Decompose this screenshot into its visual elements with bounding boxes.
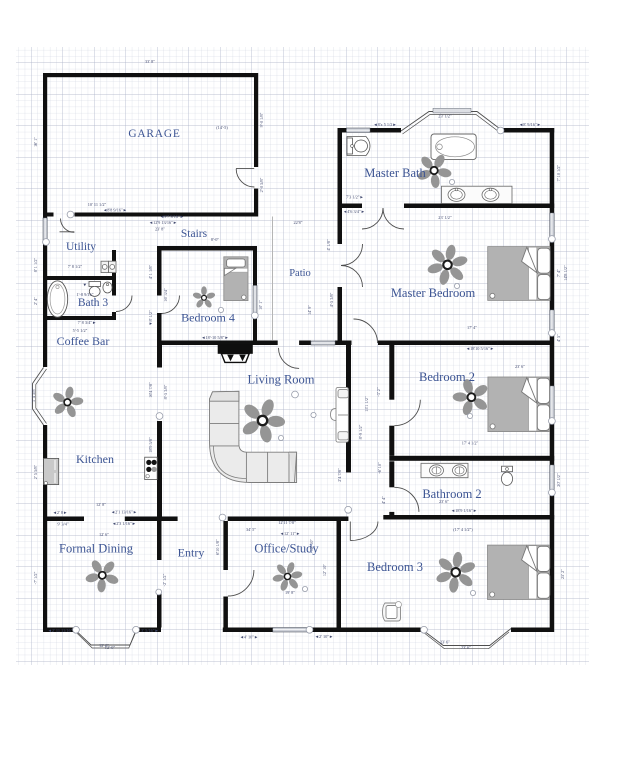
svg-text:15'1 1/2": 15'1 1/2" (364, 396, 369, 412)
svg-text:7' 4": 7' 4" (556, 269, 561, 277)
svg-text:7'3 1/2"►: 7'3 1/2"► (346, 195, 364, 200)
svg-text:2'4 7/8": 2'4 7/8" (337, 468, 342, 482)
svg-text:(17' 4 1/2"): (17' 4 1/2") (453, 527, 473, 532)
svg-text:16' 1": 16' 1" (33, 137, 38, 147)
svg-text:◄4' 10"►: ◄4' 10"► (240, 635, 259, 640)
svg-text:Patio: Patio (289, 268, 311, 279)
svg-text:12' 6": 12' 6" (99, 532, 109, 537)
svg-text:14' 9": 14' 9" (307, 305, 312, 315)
svg-text:Stairs: Stairs (181, 228, 208, 240)
svg-text:◄18'9 1/16"►: ◄18'9 1/16"► (451, 508, 477, 513)
svg-text:33' 8": 33' 8" (145, 59, 155, 64)
svg-text:◄2' 10"►: ◄2' 10"► (315, 634, 334, 639)
svg-text:8' 1 1/2": 8' 1 1/2" (33, 258, 38, 273)
svg-text:2'-0 5/8": 2'-0 5/8" (259, 177, 264, 192)
svg-text:Kitchen: Kitchen (76, 452, 114, 466)
svg-text:Bathroom 2: Bathroom 2 (422, 487, 481, 501)
svg-text:12' 8": 12' 8" (96, 502, 106, 507)
svg-text:Living Room: Living Room (247, 373, 314, 387)
svg-text:◄8' 9/16"►: ◄8' 9/16"► (519, 122, 541, 127)
svg-text:◄8'x 5 1/2►: ◄8'x 5 1/2► (373, 122, 396, 127)
svg-text:GARAGE: GARAGE (128, 128, 180, 140)
svg-text:2' 5 5/8": 2' 5 5/8" (33, 465, 38, 480)
svg-text:18'9 5/8": 18'9 5/8" (148, 437, 153, 453)
svg-text:Utility: Utility (66, 241, 96, 253)
svg-text:4' 1 1/8": 4' 1 1/8" (148, 265, 153, 280)
svg-text:Bath 3: Bath 3 (78, 297, 109, 309)
svg-text:16'4 7/8": 16'4 7/8" (148, 382, 153, 398)
svg-text:-6' 10": -6' 10" (377, 462, 382, 474)
svg-text:17' 4 1/2": 17' 4 1/2" (462, 441, 479, 446)
svg-text:◄2'3 1/16"►: ◄2'3 1/16"► (112, 521, 136, 526)
svg-text:Bedroom 4: Bedroom 4 (181, 311, 235, 325)
svg-text:9' 3/4": 9' 3/4" (57, 522, 68, 527)
svg-text:◄2'1 13/16"►: ◄2'1 13/16"► (111, 510, 137, 515)
svg-text:Master Bedroom: Master Bedroom (391, 286, 476, 300)
svg-text:4' 4": 4' 4" (381, 496, 386, 504)
svg-text:23' 1/2": 23' 1/2" (438, 215, 452, 220)
svg-text:23' 8": 23' 8" (155, 227, 165, 232)
svg-text:17' 4": 17' 4" (467, 325, 477, 330)
svg-text:◄4'6 3/4"►: ◄4'6 3/4"► (343, 209, 365, 214)
svg-text:12' 10": 12' 10" (322, 564, 327, 576)
svg-text:4'-5 3/8": 4'-5 3/8" (329, 292, 334, 307)
svg-text:22'8": 22'8" (294, 220, 303, 225)
svg-text:23' 6": 23' 6" (461, 645, 471, 650)
svg-text:8'-0": 8'-0" (211, 237, 220, 242)
svg-text:◄: ◄ (82, 283, 87, 287)
svg-text:25' 2": 25' 2" (560, 569, 565, 579)
svg-text:14'8 1/2": 14'8 1/2" (563, 265, 568, 281)
svg-text:12' 10": 12' 10" (309, 539, 314, 551)
svg-text:(14'-5): (14'-5) (216, 125, 228, 130)
svg-text:23' 6": 23' 6" (439, 499, 449, 504)
svg-text:3' 5/16"►: 3' 5/16"► (141, 628, 159, 633)
svg-text:7' 8 3/4"►: 7' 8 3/4"► (78, 320, 97, 325)
svg-text:9'-0 1/8": 9'-0 1/8" (259, 112, 264, 127)
svg-text:12'11 7/8": 12'11 7/8" (278, 520, 296, 525)
svg-text:23' 6": 23' 6" (515, 364, 525, 369)
svg-text:7' 10 1/2": 7' 10 1/2" (556, 164, 561, 181)
svg-text:Master Bath: Master Bath (364, 166, 426, 180)
svg-text:23' 1/2": 23' 1/2" (438, 114, 452, 119)
svg-text:1'-8 9/16": 1'-8 9/16" (77, 292, 94, 297)
svg-text:◄2' 11 11/16": ◄2' 11 11/16" (48, 628, 73, 633)
svg-text:6'10 1/8": 6'10 1/8" (215, 539, 220, 555)
svg-text:16' 3/4": 16' 3/4" (163, 288, 168, 302)
svg-text:8'-5 3/8": 8'-5 3/8" (163, 384, 168, 399)
svg-text:Coffee Bar: Coffee Bar (57, 334, 110, 348)
svg-text:◄12' 11"►: ◄12' 11"► (280, 531, 301, 536)
svg-text:-7' 1/2": -7' 1/2" (33, 571, 38, 584)
svg-text:4' 1/8": 4' 1/8" (326, 239, 331, 250)
svg-text:Bedroom 2: Bedroom 2 (419, 370, 475, 384)
svg-text:7' 8 1/2": 7' 8 1/2" (68, 264, 83, 269)
svg-text:23' 6": 23' 6" (440, 640, 450, 645)
svg-text:10' 1": 10' 1" (258, 300, 263, 310)
svg-text:10' 11 1/2": 10' 11 1/2" (88, 202, 107, 207)
svg-text:◄9'7 9/16"►: ◄9'7 9/16"► (160, 214, 184, 219)
svg-text:3' 4 5/8": 3' 4 5/8" (31, 388, 36, 403)
svg-text:Formal Dining: Formal Dining (59, 542, 134, 556)
svg-text:4' 5": 4' 5" (556, 334, 561, 342)
svg-text:-2' 1/2": -2' 1/2" (162, 573, 167, 586)
svg-text:20' 1/2": 20' 1/2" (556, 473, 561, 487)
svg-text:19' 8": 19' 8" (285, 590, 295, 595)
svg-text:12'-0": 12'-0" (105, 645, 116, 650)
svg-text:▼8' 1/2": ▼8' 1/2" (148, 310, 153, 326)
svg-text:2' 4": 2' 4" (33, 297, 38, 305)
svg-text:◄18'-10 5/8"►: ◄18'-10 5/8"► (201, 335, 229, 340)
svg-text:8'-9 1/2": 8'-9 1/2" (358, 424, 363, 439)
svg-text:◄8'8 9/16"►: ◄8'8 9/16"► (103, 208, 127, 213)
svg-text:◄12'9 13/16"►: ◄12'9 13/16"► (149, 220, 177, 225)
svg-text:◄18'10 5/16"►: ◄18'10 5/16"► (466, 346, 494, 351)
svg-text:Entry: Entry (178, 546, 205, 560)
svg-text:◄2' 8►: ◄2' 8► (53, 510, 68, 515)
svg-text:5'-5 1/2": 5'-5 1/2" (73, 328, 88, 333)
svg-text:-3' 2": -3' 2" (376, 387, 381, 397)
svg-text:34' 5": 34' 5" (246, 527, 256, 532)
svg-text:Bedroom 3: Bedroom 3 (367, 560, 423, 574)
